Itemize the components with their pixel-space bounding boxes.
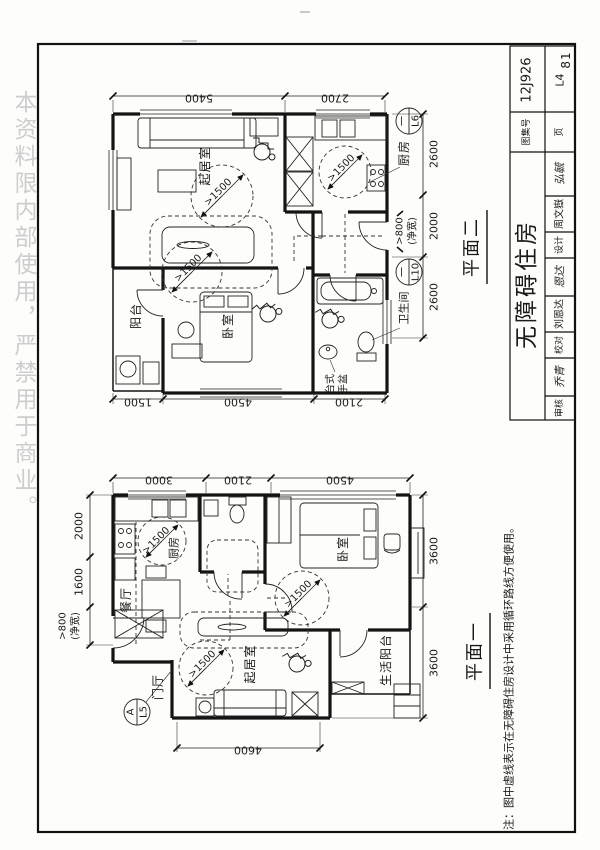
- sheet-title: 无障碍住房: [514, 219, 540, 349]
- svg-text:A: A: [126, 708, 137, 715]
- svg-text:平面二: 平面二: [462, 217, 483, 277]
- bath-callout: 一 L10 卫生间: [372, 259, 422, 340]
- svg-text:2100: 2100: [224, 474, 252, 487]
- wheelchair-icon: [282, 645, 312, 675]
- cabinet-symbol: [286, 137, 313, 206]
- coffee-table-symbol: [158, 170, 196, 192]
- chair-desk-symbol: [172, 322, 202, 358]
- plan2-dim-top: 5400 2700: [110, 92, 389, 113]
- atlas-label: 图集号: [520, 118, 532, 145]
- plan2: 5400 2700 2600 2000 2600 >800 (净宽): [109, 92, 441, 409]
- toilet-symbol: [229, 497, 246, 523]
- title-block: 12J926 L4 图集号 页 无障碍住房 弘毓 周文嶽 设计 恩达 刘恩达 校…: [510, 46, 575, 420]
- room-label-living: 起居室: [242, 644, 257, 683]
- sofa-symbol: [138, 118, 256, 148]
- design-signature: 弘毓: [554, 161, 567, 185]
- kitchen-fixtures: [315, 116, 387, 191]
- bathtub-symbol: [317, 278, 383, 304]
- plan2-title: 平面二: [462, 210, 488, 284]
- basin-symbol: [204, 500, 218, 516]
- svg-text:2600: 2600: [428, 140, 441, 168]
- drawing-sheet: 12J926 L4 图集号 页 无障碍住房 弘毓 周文嶽 设计 恩达 刘恩达 校…: [0, 0, 600, 850]
- svg-text:1600: 1600: [73, 568, 86, 596]
- svg-text:(净宽): (净宽): [69, 612, 82, 640]
- svg-text:一: 一: [398, 116, 409, 126]
- svg-text:1500: 1500: [124, 396, 152, 409]
- room-label-balcony: 阳台: [128, 303, 143, 329]
- plan2-clear-width: >800 (净宽): [395, 211, 419, 252]
- svg-text:3600: 3600: [428, 649, 441, 677]
- plan1-kitchen-turning-circle: >1500 厨房: [138, 517, 186, 565]
- page-code: L4: [554, 73, 567, 86]
- svg-text:L5: L5: [139, 706, 150, 718]
- plan1-dim-left: 2000 1600 >800 (净宽): [58, 492, 114, 649]
- svg-text:4600: 4600: [234, 744, 262, 757]
- svg-text:2700: 2700: [321, 92, 349, 105]
- svg-text:L6: L6: [411, 115, 422, 127]
- room-label-balcony: 生活阳台: [378, 634, 393, 686]
- check-signature: 恩达: [554, 264, 567, 288]
- page-number: 81: [559, 51, 573, 68]
- plan1-dim-top: 3000 2100 4500: [110, 474, 414, 494]
- room-label-bath: 卫生间: [397, 292, 411, 325]
- chair-symbol: [384, 534, 400, 553]
- svg-text:2100: 2100: [335, 396, 363, 409]
- svg-text:5400: 5400: [185, 92, 213, 105]
- scanned-drawing-page: 本资料限内部使用，严禁用于商业。 12J926 L4 图集号 页: [0, 0, 600, 850]
- basin-symbol: [319, 345, 337, 372]
- svg-text:2000: 2000: [428, 212, 441, 240]
- wheelchair-icon: [315, 301, 345, 331]
- design-label: 设计: [553, 236, 565, 254]
- scan-artifacts: [182, 12, 310, 41]
- room-label-living: 起居室: [197, 146, 212, 185]
- page-label: 页: [554, 127, 565, 136]
- svg-text:2600: 2600: [428, 283, 441, 311]
- wardrobe-symbol: [267, 497, 291, 543]
- svg-text:台式: 台式: [324, 374, 337, 394]
- plan1-living-turning-circle: >1500: [179, 641, 233, 695]
- svg-text:4500: 4500: [326, 474, 354, 487]
- designer-name: 周文嶽: [553, 199, 566, 229]
- armchair-symbol: [292, 692, 318, 716]
- balcony-rail-brace: [332, 682, 420, 718]
- checker-name: 刘恩达: [554, 299, 566, 329]
- svg-text:>1500: >1500: [187, 649, 219, 681]
- svg-text:L10: L10: [411, 263, 422, 281]
- plan1-dim-bottom: 4600: [174, 722, 324, 757]
- balcony-fixtures: [116, 356, 159, 384]
- room-label-foyer: 门厅: [150, 674, 165, 700]
- room-label-kitchen: 厨房: [168, 537, 181, 559]
- svg-text:>800: >800: [395, 217, 406, 244]
- atlas-number: 12J926: [520, 57, 535, 102]
- room-label-bedroom: 卧室: [335, 536, 350, 562]
- note-text: 注：图中虚线表示在无障碍住房设计中采用循环路线方便使用。: [502, 522, 516, 830]
- sofa-symbol: [214, 690, 286, 716]
- plan1-title: 平面一: [465, 613, 491, 689]
- dining-table-symbol: [142, 566, 180, 632]
- svg-text:>800: >800: [58, 612, 69, 639]
- svg-text:>1500: >1500: [283, 579, 315, 611]
- tv-cabinet-symbol: [117, 158, 131, 210]
- plan2-dim-bottom: 1500 4500 2100: [110, 393, 389, 409]
- room-label-bedroom: 卧室: [220, 313, 235, 339]
- review-label: 审核: [553, 399, 565, 417]
- svg-text:3600: 3600: [428, 537, 441, 565]
- room-label-dining: 餐厅: [118, 587, 133, 613]
- svg-text:手盆: 手盆: [337, 374, 350, 394]
- wheelchair-icon: [252, 295, 283, 326]
- stool-symbol: [196, 698, 214, 716]
- desk-symbol: [250, 118, 278, 136]
- foyer-callout: A L5 门厅: [124, 670, 172, 725]
- svg-text:一: 一: [398, 267, 409, 277]
- plan2-route-turning-circle: >1500: [162, 242, 222, 302]
- svg-text:3000: 3000: [145, 474, 173, 487]
- svg-text:2000: 2000: [73, 512, 86, 540]
- check-label: 校对: [553, 336, 565, 354]
- bath-route: [207, 540, 258, 592]
- review-signature: 乔青: [554, 365, 567, 388]
- toilet-symbol: [357, 332, 376, 361]
- room-label-kitchen: 厨房: [396, 140, 411, 166]
- svg-text:(净宽): (净宽): [406, 217, 419, 245]
- svg-text:>1500: >1500: [326, 153, 358, 185]
- plan2-kitchen-turning-circle: >1500: [319, 146, 371, 198]
- plan1: 3000 2100 4500 2000 1600 >800 (净宽) 3600: [58, 474, 441, 757]
- svg-text:平面一: 平面一: [465, 621, 486, 681]
- svg-text:4500: 4500: [224, 396, 252, 409]
- basin-note: 台式 手盆: [324, 374, 350, 394]
- kitchen-callout: 一 L6 厨房: [368, 108, 422, 183]
